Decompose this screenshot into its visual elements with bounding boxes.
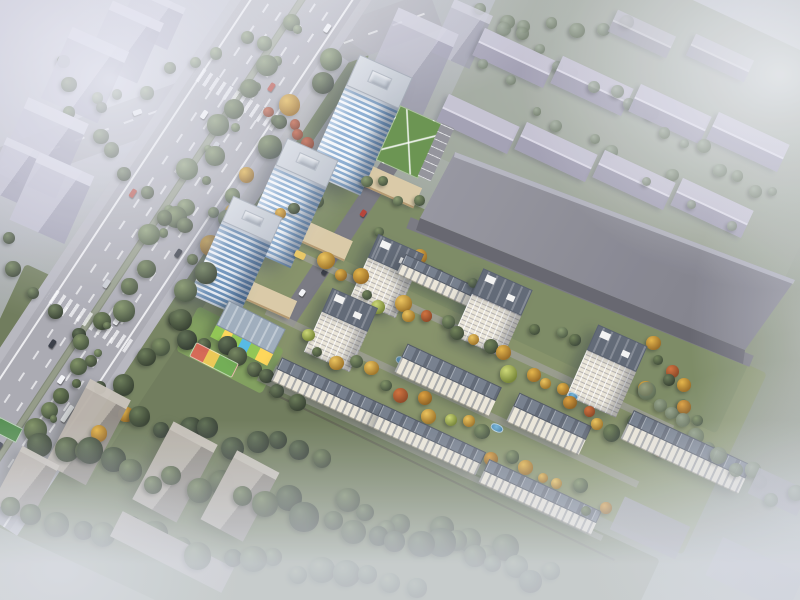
tree <box>205 146 225 166</box>
tree <box>533 107 542 116</box>
tree <box>117 167 131 181</box>
tree <box>302 329 315 342</box>
tree <box>112 89 122 99</box>
tree <box>3 232 15 244</box>
tree <box>174 279 197 302</box>
rooftop-penthouse <box>295 152 319 171</box>
tree <box>44 512 69 537</box>
tree <box>408 531 435 558</box>
tree <box>157 210 172 225</box>
tree <box>20 504 41 525</box>
tree <box>563 396 577 410</box>
tree <box>289 394 306 411</box>
tree <box>353 268 369 284</box>
tree <box>207 114 229 136</box>
tree <box>233 486 253 506</box>
tree <box>70 358 87 375</box>
tree <box>77 437 104 464</box>
car <box>200 109 209 119</box>
tree <box>247 431 269 453</box>
tree <box>176 158 198 180</box>
tree <box>137 260 156 279</box>
car <box>298 288 306 297</box>
tree <box>257 36 272 51</box>
tree <box>113 300 135 322</box>
aerial-rendering-scene <box>0 0 800 600</box>
tree <box>187 478 212 503</box>
tree <box>210 47 223 60</box>
tree <box>53 388 69 404</box>
tree <box>240 79 259 98</box>
tree <box>161 466 181 486</box>
tree <box>581 506 591 516</box>
tree <box>646 336 661 351</box>
tree <box>289 502 318 531</box>
tree <box>727 221 737 231</box>
tree <box>638 382 656 400</box>
tree <box>317 252 335 270</box>
tree <box>788 485 800 501</box>
tree <box>542 562 560 580</box>
tree <box>364 361 379 376</box>
tree <box>333 560 360 587</box>
tree <box>569 334 581 346</box>
tree <box>519 570 542 593</box>
rooftop-penthouse <box>367 70 393 91</box>
tree <box>450 326 464 340</box>
tree <box>378 176 388 186</box>
tree <box>569 23 585 39</box>
car <box>359 209 367 218</box>
tree <box>361 176 373 188</box>
tree <box>663 374 675 386</box>
tree <box>239 167 255 183</box>
tree <box>358 565 377 584</box>
tree <box>393 196 403 206</box>
tree <box>288 203 300 215</box>
tree <box>478 59 488 69</box>
tree <box>324 511 343 530</box>
tree <box>518 460 533 475</box>
tree <box>474 424 490 440</box>
tree <box>380 573 400 593</box>
tree <box>289 440 309 460</box>
tree <box>73 334 88 349</box>
tree <box>119 459 142 482</box>
tree <box>402 310 415 323</box>
tree <box>529 324 540 335</box>
tree <box>584 406 595 417</box>
tree <box>407 578 427 598</box>
tree <box>588 81 600 93</box>
tree <box>603 424 621 442</box>
tree <box>309 557 335 583</box>
tree <box>264 548 282 566</box>
tree <box>61 77 76 92</box>
tree <box>421 310 433 322</box>
tree <box>224 549 242 567</box>
tree <box>48 304 63 319</box>
tree <box>195 262 216 283</box>
car <box>128 188 137 198</box>
tree <box>484 555 501 572</box>
tree <box>313 449 332 468</box>
tree <box>573 478 588 493</box>
tree <box>177 218 193 234</box>
tree <box>464 545 486 567</box>
tree <box>329 356 344 371</box>
tree <box>164 62 176 74</box>
context-shed <box>705 537 800 600</box>
tree <box>240 546 266 572</box>
tree <box>312 72 334 94</box>
tree <box>293 25 302 34</box>
tree <box>252 491 278 517</box>
tree <box>138 224 160 246</box>
tree <box>5 261 21 277</box>
tree <box>140 86 154 100</box>
tree <box>557 327 568 338</box>
tree <box>187 254 198 265</box>
tree <box>141 186 154 199</box>
tree <box>129 406 150 427</box>
tree <box>144 476 162 494</box>
tree <box>341 520 366 545</box>
tree <box>1 497 20 516</box>
tree <box>104 142 120 158</box>
tree <box>103 322 110 329</box>
tree <box>551 478 563 490</box>
tree <box>121 278 138 295</box>
tree <box>418 391 432 405</box>
tree <box>729 463 744 478</box>
car <box>48 339 57 349</box>
tree <box>96 102 107 113</box>
tree <box>546 17 557 28</box>
tree <box>184 542 212 570</box>
tree <box>231 123 240 132</box>
tree <box>677 400 691 414</box>
tree <box>527 368 541 382</box>
tree <box>93 129 109 145</box>
tree <box>500 365 517 382</box>
rooftop-penthouse <box>241 210 264 228</box>
tree <box>320 48 343 71</box>
